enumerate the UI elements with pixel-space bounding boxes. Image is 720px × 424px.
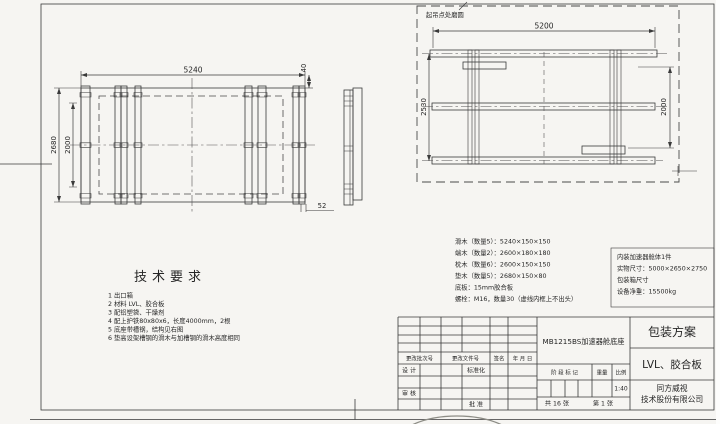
stage-mark-label: 阶 段 标 记 bbox=[551, 369, 578, 377]
tech-item: 2 材料 LVL、胶合板 bbox=[108, 299, 165, 308]
dim-label: 2000 bbox=[64, 136, 72, 154]
lug-bottom bbox=[582, 146, 625, 154]
role-approve: 批 准 bbox=[469, 401, 483, 409]
company-name: 技术股份有限公司 bbox=[641, 394, 703, 404]
lifting-view: 起吊点处磨圆 5200 2530 2000 bbox=[417, 2, 697, 182]
lifting-dashed-border bbox=[417, 6, 679, 182]
callout-label: 起吊点处磨圆 bbox=[426, 10, 464, 19]
materials-line: 垫木（数量5）：2680×150×80 bbox=[455, 271, 547, 280]
tech-requirements: 技术要求 1 出口箱 2 材料 LVL、胶合板 3 配铝塑袋、干燥剂 4 配上护… bbox=[108, 270, 240, 342]
package-note: 内装加速器舱体1件 实物尺寸：5000×2650×2750 包装箱尺寸 设备净重… bbox=[611, 248, 714, 307]
dim-label: 5200 bbox=[534, 22, 553, 31]
post bbox=[468, 50, 472, 164]
scheme-title: 包装方案 bbox=[648, 324, 696, 339]
dim-label: 52 bbox=[318, 202, 327, 210]
drawing-sheet: 5240 40 2680 2000 52 起吊点处磨圆 bbox=[0, 0, 720, 424]
materials-line: 滑木（数量5）：5240×150×150 bbox=[455, 237, 551, 246]
dim-label: 2000 bbox=[660, 98, 668, 116]
plan-view: 5240 40 2680 2000 52 bbox=[50, 64, 334, 212]
package-line: 内装加速器舱体1件 bbox=[617, 252, 671, 261]
sheets-total: 共 16 张 bbox=[545, 400, 570, 408]
beam-centerlines bbox=[422, 54, 670, 161]
lug-top bbox=[463, 62, 506, 69]
post bbox=[617, 50, 621, 164]
dim-label: 5240 bbox=[183, 66, 202, 75]
scale-label: 比例 bbox=[616, 369, 627, 377]
materials-line: 枕木（数量6）：2600×150×150 bbox=[455, 260, 551, 269]
post bbox=[475, 50, 479, 164]
section-mark bbox=[672, 166, 697, 176]
materials-line: 端木（数量2）：2600×180×180 bbox=[455, 248, 551, 257]
col-signature: 签名 bbox=[494, 355, 505, 363]
side-divisions bbox=[344, 96, 353, 194]
materials-line: 底板：15mm胶合板 bbox=[455, 283, 514, 292]
dim-label: 40 bbox=[300, 64, 308, 73]
drawing-number: MB1215BS加速器舱底座 bbox=[543, 337, 625, 346]
tech-item: 3 配铝塑袋、干燥剂 bbox=[108, 308, 164, 317]
role-standardize: 标准化 bbox=[467, 367, 485, 375]
company-name: 同方威视 bbox=[656, 383, 687, 393]
engineering-drawing: 5240 40 2680 2000 52 起吊点处磨圆 bbox=[0, 0, 720, 424]
side-view bbox=[344, 88, 362, 205]
col-change-doc: 更改文件号 bbox=[452, 355, 480, 363]
role-review: 审 核 bbox=[402, 390, 416, 398]
dim-label: 2530 bbox=[420, 98, 428, 116]
material-spec: LVL、胶合板 bbox=[642, 358, 702, 371]
package-line: 实物尺寸：5000×2650×2750 bbox=[617, 264, 707, 273]
tech-item: 6 垫高设架槽钢的滑木与加槽钢的滑木高度相同 bbox=[108, 333, 240, 342]
dim-label: 2680 bbox=[50, 136, 58, 154]
title-block: MB1215BS加速器舱底座 包装方案 LVL、胶合板 同方威视 技术股份有限公… bbox=[398, 317, 714, 410]
tech-item: 4 配上护铁80x80x6，长度4000mm，2根 bbox=[108, 316, 231, 325]
tech-requirements-title: 技术要求 bbox=[134, 270, 206, 285]
materials-line: 螺栓：M16，数量30（虚线内框上不出头） bbox=[455, 294, 577, 303]
package-line: 包装箱尺寸 bbox=[617, 275, 648, 284]
weight-label: 重量 bbox=[597, 369, 608, 377]
drawing-frame bbox=[0, 0, 720, 424]
tech-item: 5 底座带槽钢，结构见右图 bbox=[108, 325, 183, 334]
role-design: 设 计 bbox=[402, 367, 416, 375]
package-line: 设备净重：15500kg bbox=[617, 287, 676, 296]
tech-item: 1 出口箱 bbox=[108, 291, 133, 300]
scale-value: 1:40 bbox=[614, 386, 628, 393]
sheet-number: 第 1 张 bbox=[593, 400, 614, 408]
col-date: 年 月 日 bbox=[513, 355, 533, 363]
post bbox=[610, 50, 614, 164]
col-change-batch: 更改批次号 bbox=[406, 355, 434, 363]
materials-note: 滑木（数量5）：5240×150×150 端木（数量2）：2600×180×18… bbox=[455, 237, 577, 304]
